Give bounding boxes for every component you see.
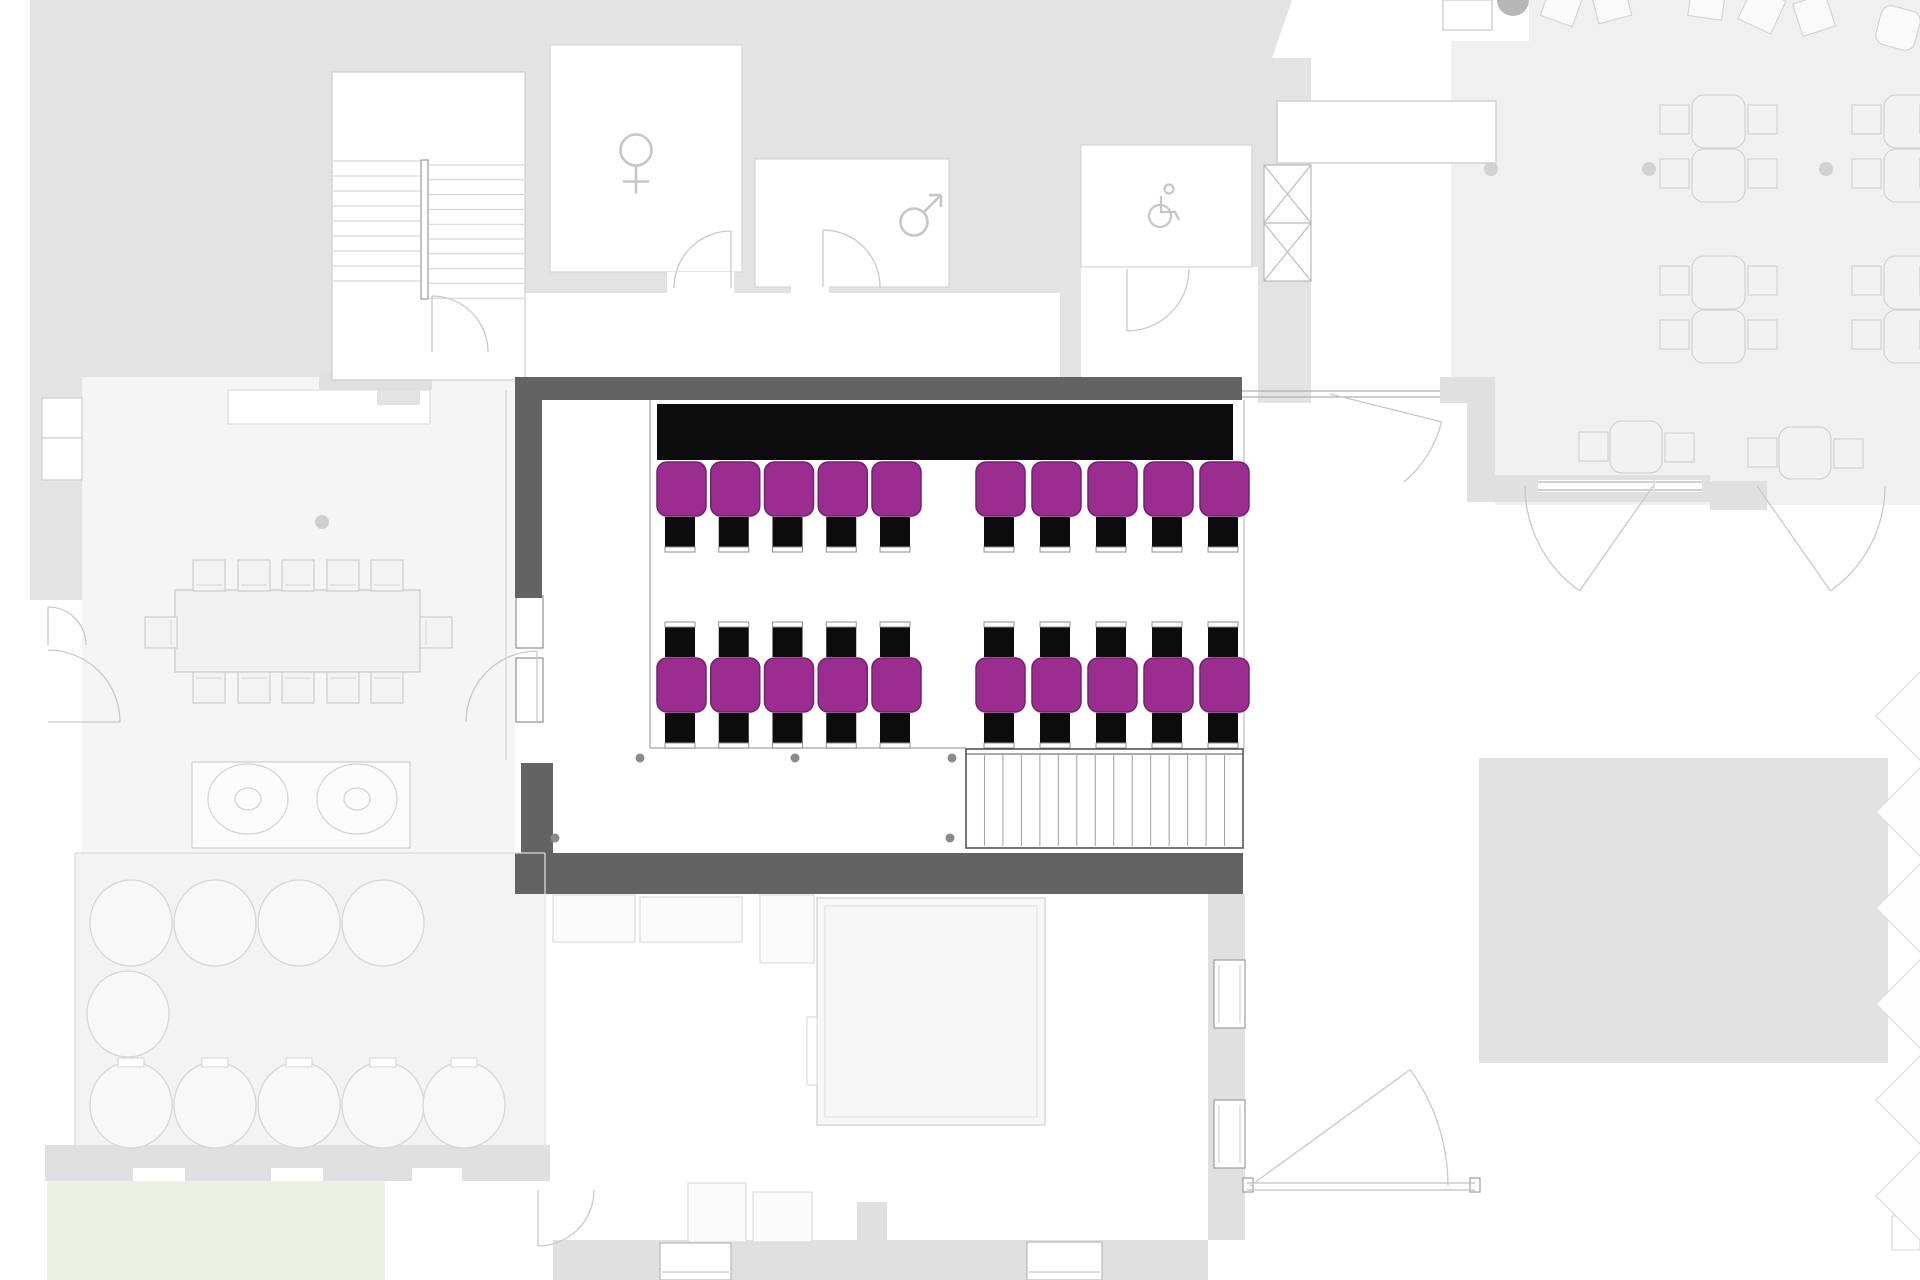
classroom-main-door-leaf — [1330, 394, 1442, 422]
dining-table — [1610, 421, 1662, 473]
desk-edge — [1096, 743, 1126, 748]
left-edge-box-1 — [42, 398, 82, 438]
bottomleft-wall-gap3 — [412, 1168, 462, 1181]
student-chair — [657, 658, 706, 712]
student-chair — [818, 462, 867, 516]
student-chair — [976, 462, 1025, 516]
student-desk — [1040, 713, 1070, 743]
wc-women-room — [550, 45, 742, 272]
student-chair — [1032, 462, 1081, 516]
dining-chair — [1748, 105, 1777, 134]
meeting-chair — [193, 672, 225, 703]
presentation-board — [657, 404, 1233, 460]
floor-dot — [948, 754, 957, 763]
meeting-chair — [327, 672, 359, 703]
dining-chair — [1852, 320, 1881, 349]
dining-table — [1692, 95, 1745, 148]
desk-edge — [719, 743, 749, 748]
student-desk — [773, 627, 803, 657]
student-desk — [1096, 517, 1126, 547]
student-desk — [1208, 517, 1238, 547]
student-desk — [880, 627, 910, 657]
dining-chair — [1579, 432, 1608, 461]
barrel-tap — [286, 1058, 312, 1067]
meeting-chair — [420, 617, 452, 648]
student-chair — [1088, 462, 1137, 516]
desk-edge — [1040, 622, 1070, 627]
dining-table — [1779, 427, 1831, 479]
dining-floor-dot — [1484, 162, 1498, 176]
student-chair — [711, 658, 760, 712]
classroom-doorframe-1 — [516, 596, 543, 648]
desk-edge — [984, 547, 1014, 552]
right-room-door-leaf — [1250, 1070, 1410, 1186]
meeting-chair — [371, 560, 403, 591]
meeting-chair — [193, 560, 225, 591]
dining-chair — [1660, 159, 1689, 188]
dining-chair — [1748, 438, 1777, 467]
desk-edge — [1208, 743, 1238, 748]
dining-chair — [1852, 266, 1881, 295]
bottomroom-bench-2 — [1027, 1242, 1102, 1280]
student-desk — [1208, 713, 1238, 743]
desk-edge — [880, 743, 910, 748]
desk-edge — [826, 622, 856, 627]
bar-counter-top-box — [1443, 0, 1492, 30]
barrel — [90, 1062, 172, 1148]
dining-table — [1884, 95, 1920, 148]
terrace-gray — [1479, 758, 1888, 1063]
student-chair — [711, 462, 760, 516]
kitchen-counter — [192, 762, 410, 848]
student-chair — [872, 462, 921, 516]
student-chair — [765, 658, 814, 712]
bottomroom-stage — [817, 898, 1045, 1125]
bg-dining-gray — [1451, 0, 1920, 505]
floor-dot — [946, 834, 955, 843]
corridor-white — [1311, 41, 1451, 377]
desk-edge — [719, 622, 749, 627]
bottomroom-counter-1 — [553, 895, 635, 942]
barrel-tap — [202, 1058, 228, 1067]
student-desk — [984, 713, 1014, 743]
meeting-chair — [238, 560, 270, 591]
dining-floor-dot — [1819, 162, 1833, 176]
barrel — [87, 971, 169, 1057]
meeting-chair — [371, 672, 403, 703]
dining-table — [1692, 310, 1745, 363]
green-terrace — [47, 1181, 385, 1280]
student-desk — [1040, 517, 1070, 547]
student-desk — [1040, 627, 1070, 657]
desk-edge — [665, 547, 695, 552]
desk-edge — [984, 743, 1014, 748]
barrel-tap — [451, 1058, 477, 1067]
bottomleft-wall-gap1 — [133, 1168, 185, 1181]
wc-men-room — [755, 159, 949, 287]
desk-edge — [773, 743, 803, 748]
dining-table — [1884, 256, 1920, 309]
bottomcenter-right-wall — [1208, 894, 1245, 1240]
student-chair — [818, 658, 867, 712]
student-desk — [665, 713, 695, 743]
barrel — [90, 880, 172, 966]
floor-dot — [791, 754, 800, 763]
student-chair — [765, 462, 814, 516]
student-chair — [1144, 658, 1193, 712]
desk-edge — [880, 622, 910, 627]
dining-floor-dot — [1642, 162, 1656, 176]
barrel — [342, 880, 424, 966]
classroom-wall-bottom — [515, 853, 1243, 894]
desk-edge — [1040, 743, 1070, 748]
wall-door-right-vert — [1467, 403, 1495, 502]
dining-table — [1884, 310, 1920, 363]
student-desk — [719, 517, 749, 547]
meeting-chair — [282, 560, 314, 591]
student-chair — [1200, 658, 1249, 712]
dining-chair — [1748, 320, 1777, 349]
barrel — [174, 880, 256, 966]
student-chair — [1088, 658, 1137, 712]
student-desk — [1152, 627, 1182, 657]
student-desk — [773, 713, 803, 743]
bottomleft-wall-gap2 — [271, 1168, 323, 1181]
meeting-chair — [145, 617, 177, 648]
student-desk — [826, 517, 856, 547]
desk-edge — [826, 547, 856, 552]
bottomcenter-bottom-gray — [553, 1240, 1208, 1280]
dining-table — [1884, 149, 1920, 202]
student-chair — [976, 658, 1025, 712]
classroom-wall-top — [515, 377, 1242, 400]
desk-edge — [826, 743, 856, 748]
student-desk — [719, 713, 749, 743]
desk-edge — [665, 743, 695, 748]
bottomroom-bench-1 — [660, 1243, 731, 1280]
barrel-tap — [370, 1058, 396, 1067]
student-desk — [1096, 713, 1126, 743]
floor-dot — [636, 754, 645, 763]
student-desk — [880, 517, 910, 547]
classroom-stairs — [966, 749, 1243, 848]
meeting-chair — [327, 560, 359, 591]
trellis-diamond — [1876, 1055, 1920, 1145]
dining-chair — [1660, 266, 1689, 295]
barrel — [423, 1062, 505, 1148]
student-desk — [880, 713, 910, 743]
dining-table — [1692, 256, 1745, 309]
student-desk — [1152, 517, 1182, 547]
dining-chair — [1748, 266, 1777, 295]
dining-chair — [1834, 439, 1863, 468]
student-chair — [1144, 462, 1193, 516]
desk-edge — [665, 622, 695, 627]
dining-table — [1692, 149, 1745, 202]
barrel — [258, 1062, 340, 1148]
stub-gray-bottomcenter — [857, 1202, 887, 1242]
meeting-chair — [282, 672, 314, 703]
desk-edge — [1096, 547, 1126, 552]
student-chair — [1032, 658, 1081, 712]
desk-edge — [719, 547, 749, 552]
column-half-disc — [1497, 0, 1529, 16]
barrel — [174, 1062, 256, 1148]
meeting-chair — [238, 672, 270, 703]
barrel — [342, 1062, 424, 1148]
meeting-table — [175, 590, 420, 672]
bottomroom-counter-2 — [640, 897, 742, 942]
desk-edge — [1152, 622, 1182, 627]
right-room-door-arc — [1410, 1070, 1448, 1186]
floor-plan-svg — [0, 0, 1920, 1280]
desk-edge — [1208, 547, 1238, 552]
bottomroom-counter-3 — [760, 895, 814, 963]
desk-edge — [773, 622, 803, 627]
student-chair — [657, 462, 706, 516]
student-desk — [719, 627, 749, 657]
stairwell-divider — [421, 160, 428, 299]
student-desk — [826, 627, 856, 657]
bottomroom-box-1 — [688, 1183, 746, 1242]
floor-dot — [551, 834, 560, 843]
left-edge-box-2 — [42, 438, 82, 480]
meeting-floor-dot — [315, 515, 329, 529]
wc-women-door-gap — [667, 272, 734, 294]
student-desk — [773, 517, 803, 547]
dining-chair — [1852, 105, 1881, 134]
floor-plan-canvas — [0, 0, 1920, 1280]
classroom-main-door-arc — [1404, 422, 1442, 482]
wall-door-top-right — [1440, 377, 1495, 403]
dining-chair — [1748, 159, 1777, 188]
student-chair — [1200, 462, 1249, 516]
dining-chair — [1665, 433, 1694, 462]
bottomroom-box-2 — [753, 1192, 812, 1242]
student-desk — [826, 713, 856, 743]
wall-terrace-connector — [1710, 481, 1767, 510]
dining-chair — [1660, 320, 1689, 349]
desk-edge — [773, 547, 803, 552]
student-desk — [1152, 713, 1182, 743]
desk-edge — [1208, 622, 1238, 627]
desk-edge — [1096, 622, 1126, 627]
trellis-diamond — [1876, 671, 1920, 761]
dining-chair — [1852, 159, 1881, 188]
dining-chair — [1660, 105, 1689, 134]
student-desk — [984, 517, 1014, 547]
bottomroom-stage-stub — [807, 1017, 817, 1085]
meeting-door-left-small-arc — [48, 607, 86, 645]
desk-edge — [1152, 743, 1182, 748]
desk-edge — [1040, 547, 1070, 552]
barrel — [258, 880, 340, 966]
desk-edge — [984, 622, 1014, 627]
classroom-wall-left-upper — [515, 377, 542, 598]
bar-counter — [1277, 101, 1496, 163]
barrel-tap — [118, 1058, 144, 1067]
desk-edge — [1152, 547, 1182, 552]
desk-edge — [880, 547, 910, 552]
student-desk — [984, 627, 1014, 657]
student-desk — [1208, 627, 1238, 657]
student-desk — [665, 517, 695, 547]
meeting-alcove-notch — [377, 390, 420, 405]
student-chair — [872, 658, 921, 712]
classroom-doorframe-2 — [516, 658, 543, 722]
student-desk — [665, 627, 695, 657]
hallway-white — [448, 293, 1060, 377]
student-desk — [1096, 627, 1126, 657]
